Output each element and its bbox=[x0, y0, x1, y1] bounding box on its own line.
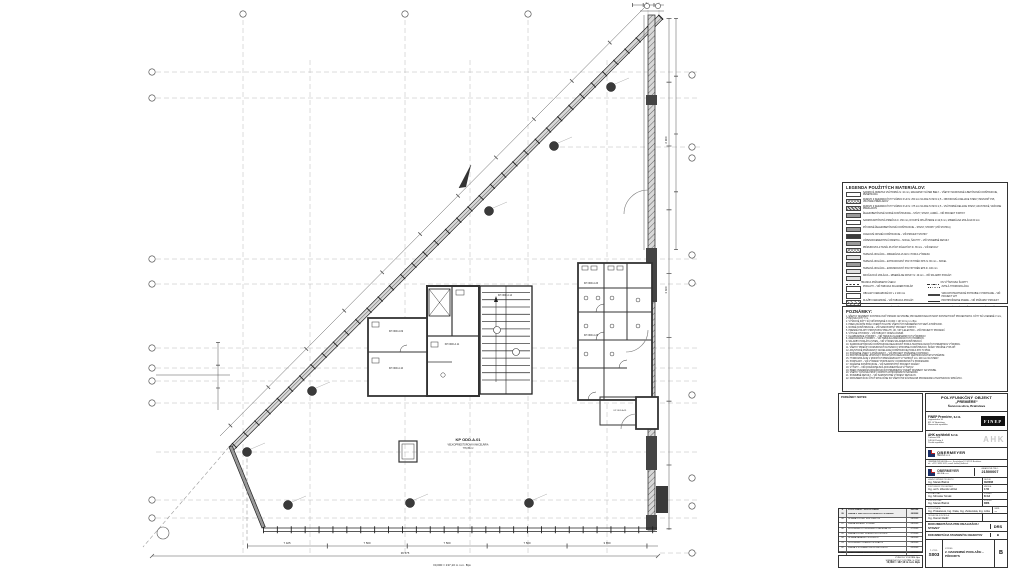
legend-swatch bbox=[846, 248, 861, 254]
drawing-sheet: KP ODD.A.01 VEĽKOPRIESTOROVÁ KANCELÁRIA … bbox=[0, 0, 1011, 570]
drawing-revision: B bbox=[994, 540, 1007, 567]
legend-text: MURIVO Z KERAMICKÝCH TVÁRNIC P+D hr. 175… bbox=[863, 206, 1004, 211]
investor-info: FINEP Premiére, s.r.o. Legionárska 10 81… bbox=[928, 415, 961, 427]
legend-row: VÁPENNOCEMENTOVÁ OMIETKA – SOKLE, ŠACHTY… bbox=[846, 240, 1004, 246]
legend-swatch bbox=[846, 213, 861, 219]
stage1-code: DRS bbox=[990, 524, 1005, 529]
legend-swatch bbox=[846, 284, 859, 285]
drawing-name: 2. NADZEMNÉ PODLAŽIE – PÔDORYS bbox=[945, 550, 992, 558]
rev-index: 03 bbox=[839, 542, 847, 546]
core-room-label: KP ODD.A.11 bbox=[445, 343, 460, 346]
obermeyer-repeat: OBERMEYER HELIKA s.r.o. bbox=[928, 468, 974, 476]
svg-text:7 500: 7 500 bbox=[444, 541, 451, 545]
person-meta-cell: PARÉ: — bbox=[992, 507, 1011, 513]
service-core bbox=[427, 286, 479, 396]
west-rooms bbox=[368, 318, 427, 396]
project-title: POLYFUNKČNÝ OBJEKT „PREMIÉRE“ Šancova ul… bbox=[926, 394, 1007, 412]
materials-legend: LEGENDA POUŽITÝCH MATERIÁLOV: SADROVÁ OM… bbox=[842, 182, 1008, 304]
stage-row-1: DOKUMENTÁCIA PRE REALIZÁCIU STAVBY DRS bbox=[926, 522, 1007, 532]
legend-text: OCEĽOVÉ NOSNÉ KONŠTRUKCIE – VIĎ PROJEKT … bbox=[863, 234, 1004, 237]
rev-description: ÚPRAVA POLOHY SDK PRIEČOK bbox=[847, 518, 907, 522]
rev-date: 08/2008 bbox=[907, 518, 922, 522]
legend-right-text: ZVISLÁ HYDROIZOLÁCIA bbox=[942, 286, 1005, 289]
legend-row: TEPELNÁ IZOLÁCIA – EXPANDOVANÝ POLYSTYRÉ… bbox=[846, 268, 1004, 274]
rev-date: 06/2008 bbox=[907, 542, 922, 546]
room-w1-label: KP ODD.A.09 bbox=[389, 330, 404, 333]
rev-description: DOPLNENIE KÓT A LEGENDY MATERIÁLOV bbox=[847, 528, 907, 532]
meta-value: — bbox=[994, 510, 1011, 513]
rev-index: 06 bbox=[839, 528, 847, 532]
note-line: 22. DOKUMENTÁCIU ČÍTAŤ SPOLOČNE SO VŠETK… bbox=[846, 378, 1004, 381]
revision-row: 03 DOPLNENIE POŽIARNYCH ÚDAJOV 06/2008 bbox=[839, 541, 922, 546]
architect-addr3: Česká republika bbox=[928, 442, 958, 445]
rev-description: ZMENA POLOHY DVERNÝCH OTVOROV bbox=[847, 533, 907, 537]
meta-value: DRS bbox=[984, 502, 1006, 505]
person-meta-cell: STUPEŇ: DRS bbox=[982, 500, 1007, 506]
person-cell: VYPRACOVAL: Ing. Miroslav Šimák bbox=[926, 493, 982, 499]
stage2-code: B bbox=[990, 533, 1005, 537]
obermeyer-logo-icon-2 bbox=[928, 469, 935, 476]
general-designer-row-2: OBERMEYER HELIKA s.r.o. ZÁKAZKOVÉ ČÍSLO:… bbox=[926, 467, 1007, 478]
stage1-text: DOKUMENTÁCIA PRE REALIZÁCIU STAVBY bbox=[928, 522, 990, 530]
general-designer-address: OBERMEYER HELIKA s.r.o., Kresánkova 12, … bbox=[926, 460, 1007, 467]
legend-text: ŽELEZOBETÓNOVÉ NOSNÉ KONŠTRUKCIE – STĹPY… bbox=[863, 213, 1004, 216]
rev-description: ZMENA V DISPOZÍCII HYGIENICKÝCH JADIER bbox=[847, 513, 907, 517]
legend-row: PÔVODNÉ ŽELEZOBETÓNOVÉ KONŠTRUKCIE – STE… bbox=[846, 227, 1004, 233]
rev-index: 05 bbox=[839, 533, 847, 537]
person-row: SPOLUPRÁCA: Ing. Prokešová, Ing. Fiala, … bbox=[926, 507, 1007, 514]
obermeyer-sub-2-text: HELIKA s.r.o. bbox=[937, 473, 959, 475]
rev-description: DOPLNENIE POŽIARNYCH ÚDAJOV bbox=[847, 542, 907, 546]
legend-swatch bbox=[846, 293, 861, 299]
legend-text: SADROVÁ OMIETKA VNÚTORNÁ hr. 10 mm, MALI… bbox=[863, 192, 1004, 197]
legend-row: ŽELEZOBETÓNOVÉ NOSNÉ KONŠTRUKCIE – STĹPY… bbox=[846, 213, 1004, 219]
setback-dashed-outline bbox=[143, 447, 247, 547]
legend-swatch bbox=[846, 192, 861, 198]
person-meta-cell: DÁTUM: 09/2008 bbox=[982, 478, 1007, 484]
legend-row: PODLAHY – VIĎ TABUĽKA SKLADIEB PODLÁH ZV… bbox=[846, 286, 1004, 292]
datum-box: VÝŠKOVÝ SYSTÉM: BpvSÚRADNICOVÝ SYSTÉM: S… bbox=[838, 555, 923, 568]
legend-row: TEPELNÁ IZOLÁCIA – EXTRUDOVANÝ POLYSTYRÉ… bbox=[846, 261, 1004, 267]
legend-title: LEGENDA POUŽITÝCH MATERIÁLOV: bbox=[846, 185, 1004, 190]
person-meta-cell: FORMÁT: 8×A4 bbox=[982, 493, 1007, 499]
rev-description: ZMENA V ROZSAHU SDK KONŠTRUKCIÍ bbox=[847, 547, 907, 551]
people-rows: HLAVNÝ INŽINIER PROJEKTU: Ing. Marek Bla… bbox=[926, 478, 1007, 522]
legend-line-symbol bbox=[928, 301, 940, 302]
legend-text: TEPELNÁ IZOLÁCIA – EXTRUDOVANÝ POLYSTYRÉ… bbox=[863, 261, 1004, 264]
legend-swatch bbox=[846, 276, 861, 282]
legend-text: VÁPENNOCEMENTOVÁ OMIETKA – SOKLE, ŠACHTY… bbox=[863, 240, 1004, 243]
revision-row: 09 ZMENA V DISPOZÍCII HYGIENICKÝCH JADIE… bbox=[839, 513, 922, 517]
project-line3: Šancova ulica, Bratislava bbox=[928, 404, 1005, 408]
legend-text: KROČAJOVÁ IZOLÁCIA – MINERÁLNE DOSKY hr.… bbox=[863, 275, 1004, 278]
obermeyer-sub: HELIKA s.r.o. bbox=[937, 455, 965, 457]
ahk-logo: AHK bbox=[983, 435, 1005, 444]
person-row: HLAVNÝ INŽINIER PROJEKTU: Ing. Marek Bla… bbox=[926, 478, 1007, 485]
legend-right-text: VZDUCHOTECHNICKÉ POTRUBIE V PODHĽADE – V… bbox=[942, 293, 1005, 298]
notes-title: POZNÁMKY: bbox=[846, 309, 1004, 314]
revision-row: 07 ZMENA SKLADBY PODLÁH 08/2008 bbox=[839, 522, 922, 527]
legend-row: TEPELNÁ IZOLÁCIA – MINERÁLNA VLNA hr. PO… bbox=[846, 254, 1004, 260]
rev-description: ZMENA SKLADBY PODLÁH bbox=[847, 523, 907, 527]
legend-text: HRANICA POŽIARNEHO ÚSEKU bbox=[861, 282, 925, 285]
legend-swatch bbox=[846, 262, 861, 268]
person-row: VYPRACOVAL: Ing. Miroslav Šimák FORMÁT: … bbox=[926, 493, 1007, 500]
legend-row: OCEĽOVÉ NOSNÉ KONŠTRUKCIE – VIĎ PROJEKT … bbox=[846, 234, 1004, 240]
datum-line: ±0,000 = 137,10 m n.m. Bpv bbox=[841, 562, 920, 565]
stage2-text: DOKUMENTÁCIA STAVEBNÝCH OBJEKTOV bbox=[928, 534, 990, 537]
finep-logo: FINEP bbox=[981, 416, 1005, 426]
legend-swatch bbox=[846, 234, 861, 240]
investor-row: FINEP Premiére, s.r.o. Legionárska 10 81… bbox=[926, 412, 1007, 431]
wc-room-1-label: KP ODD.A.26 bbox=[584, 282, 599, 285]
rev-date: 07/2008 bbox=[907, 528, 922, 532]
legend-right-text: PROTIPOŽIARNE DVERE – VIĎ POŽIARNY PROJE… bbox=[942, 300, 1005, 303]
rev-index: 07 bbox=[839, 523, 847, 527]
stage-row-2: DOKUMENTÁCIA STAVEBNÝCH OBJEKTOV B bbox=[926, 532, 1007, 540]
legend-row: MURIVO Z KERAMICKÝCH TVÁRNIC P+D hr. 175… bbox=[846, 206, 1004, 212]
corner-room-label: KP ODD.A.31 bbox=[614, 409, 628, 412]
person-name: Ing. Daniel Radič bbox=[928, 517, 980, 520]
bottom-right-room bbox=[621, 397, 658, 429]
datum-note: ±0,000 = 137,10 m n.m. Bpv bbox=[433, 563, 471, 567]
person-name: Ing. Prokešová, Ing. Fiala, Ing. Zvolens… bbox=[928, 510, 990, 513]
gp-addr2: tel.: +421 2 6930 1011, e-mail: helika@h… bbox=[928, 463, 1005, 465]
legend-swatch bbox=[846, 241, 861, 247]
person-row: TECHNICKÁ KONTROLA: Ing. Daniel Radič bbox=[926, 514, 1007, 521]
revision-rows: 09 ZMENA V DISPOZÍCII HYGIENICKÝCH JADIE… bbox=[839, 513, 922, 556]
revision-row: 02 ZMENA V ROZSAHU SDK KONŠTRUKCIÍ 05/20… bbox=[839, 546, 922, 551]
legend-swatch bbox=[846, 255, 861, 261]
legend-row: PRÍMUROVKA Z TEHÁL PLNÝCH PÁLENÝCH hr. 6… bbox=[846, 247, 1004, 253]
rev-index: 02 bbox=[839, 547, 847, 551]
legend-line-symbol bbox=[928, 294, 940, 296]
rev-date: 09/2008 bbox=[907, 513, 922, 517]
svg-text:36 575: 36 575 bbox=[401, 551, 410, 555]
revision-row: 06 DOPLNENIE KÓT A LEGENDY MATERIÁLOV 07… bbox=[839, 527, 922, 532]
obermeyer-title-2: OBERMEYER HELIKA s.r.o. bbox=[937, 469, 959, 475]
legend-text: TEPELNÁ IZOLÁCIA – MINERÁLNA VLNA hr. PO… bbox=[863, 254, 1004, 257]
title-block: POLYFUNKČNÝ OBJEKT „PREMIÉRE“ Šancova ul… bbox=[925, 393, 1008, 568]
architect-info: AHK architekti s.r.o. Türkova 828 149 00… bbox=[928, 433, 958, 445]
legend-text: TEPELNÁ IZOLÁCIA – EXPANDOVANÝ POLYSTYRÉ… bbox=[863, 268, 1004, 271]
revision-table: R POPIS ZMENY / DÔVOD ZMENY DÁTUM 09 ZME… bbox=[838, 508, 923, 553]
legend-swatch bbox=[846, 220, 861, 226]
notes-small-title: POZNÁMKY: NOTES: bbox=[841, 396, 920, 399]
stair-room-label: KP ODD.A.14 bbox=[498, 294, 513, 297]
revision-row: 05 ZMENA POLOHY DVERNÝCH OTVOROV 07/2008 bbox=[839, 532, 922, 537]
legend-text: DLAŽBY KERAMICKÉ – VIĎ TABUĽKA PODLÁH bbox=[863, 300, 926, 303]
facade-bottom-wall bbox=[263, 528, 657, 532]
legend-text: SADROKARTÓNOVÁ PRIEČKA hr. 150 mm, DVOJI… bbox=[863, 220, 1004, 223]
drawing-number: S003 bbox=[929, 552, 940, 557]
drawing-id-row: Č. VÝKR.: S003 VÝKRES: 2. NADZEMNÉ PODLA… bbox=[926, 540, 1007, 567]
meta-value: 09/2008 bbox=[984, 481, 1006, 484]
legend-row: HRANICA POŽIARNEHO ÚSEKU OS VÝŤAHOVEJ ŠA… bbox=[846, 282, 1004, 285]
rev-date: 08/2008 bbox=[907, 523, 922, 527]
person-name: Ing. Miroslav Šimák bbox=[928, 495, 980, 498]
person-cell: HLAVNÝ INŽINIER PROJEKTU: Ing. Marek Bla… bbox=[926, 478, 982, 484]
legend-row: MURIVO Z KERAMICKÝCH TVÁRNIC P+D hr. 250… bbox=[846, 199, 1004, 205]
person-row: ZODPOVEDNÝ PROJEKTANT: Ing. arch. Zdeněk… bbox=[926, 485, 1007, 492]
legend-row: SADROKARTÓNOVÁ PRIEČKA hr. 150 mm, DVOJI… bbox=[846, 220, 1004, 226]
legend-line-symbol bbox=[927, 284, 939, 285]
rev-index: 04 bbox=[839, 537, 847, 541]
svg-text:7 425: 7 425 bbox=[284, 541, 291, 545]
person-row: KONTROLOVAL: Ing. Marek Blahút STUPEŇ: D… bbox=[926, 500, 1007, 507]
person-cell: TECHNICKÁ KONTROLA: Ing. Daniel Radič bbox=[926, 514, 982, 520]
person-cell: ZODPOVEDNÝ PROJEKTANT: Ing. arch. Zdeněk… bbox=[926, 485, 982, 491]
legend-text: PÔVODNÉ ŽELEZOBETÓNOVÉ KONŠTRUKCIE – STE… bbox=[863, 227, 1004, 230]
obermeyer-name: OBERMEYER HELIKA s.r.o. bbox=[937, 450, 965, 457]
shaft-box bbox=[399, 441, 417, 462]
legend-line-symbol bbox=[928, 287, 940, 288]
person-cell: KONTROLOVAL: Ing. Marek Blahút bbox=[926, 500, 982, 506]
legend-row: OBKLADY KERAMICKÉ DO v. 2 100 mm VZDUCHO… bbox=[846, 293, 1004, 299]
legend-swatch bbox=[846, 227, 861, 233]
rev-date: 06/2008 bbox=[907, 537, 922, 541]
person-cell: SPOLUPRÁCA: Ing. Prokešová, Ing. Fiala, … bbox=[926, 507, 992, 513]
svg-text:7 500: 7 500 bbox=[524, 541, 531, 545]
investor-addr3: Slovenská republika bbox=[928, 424, 961, 427]
rev-date: 05/2008 bbox=[907, 547, 922, 551]
room-w2-label: KP ODD.A.10 bbox=[389, 367, 404, 370]
drawing-name-cell: VÝKRES: 2. NADZEMNÉ PODLAŽIE – PÔDORYS bbox=[943, 540, 994, 567]
person-meta-cell: MIERKA: 1:50 bbox=[982, 485, 1007, 491]
legend-swatch bbox=[846, 206, 861, 212]
person-name: Ing. arch. Zdeněk Hölzel bbox=[928, 488, 980, 491]
notes-lines: 1. VŠETKY ROZMERY KONTROLOVAŤ PRIAMO NA … bbox=[846, 316, 1004, 381]
meta-value: 8×A4 bbox=[984, 495, 1006, 498]
legend-right-text: OS VÝŤAHOVEJ ŠACHTY bbox=[941, 282, 1005, 285]
person-name: Ing. Marek Blahút bbox=[928, 502, 980, 505]
stair-core bbox=[480, 286, 532, 394]
person-meta-cell bbox=[982, 514, 1007, 520]
drawing-number-cell: Č. VÝKR.: S003 bbox=[926, 540, 943, 567]
legend-text: PODLAHY – VIĎ TABUĽKA SKLADIEB PODLÁH bbox=[863, 286, 926, 289]
rev-description: ÚPRAVA FASÁDNYCH PRVKOV bbox=[847, 537, 907, 541]
rev-index: 08 bbox=[839, 518, 847, 522]
wc-room-2-label: KP ODD.A.28 bbox=[584, 334, 599, 337]
svg-text:6 900: 6 900 bbox=[664, 136, 668, 143]
rev-index: 09 bbox=[839, 513, 847, 517]
rev-date: 07/2008 bbox=[907, 533, 922, 537]
legend-row: KROČAJOVÁ IZOLÁCIA – MINERÁLNE DOSKY hr.… bbox=[846, 275, 1004, 281]
revision-row: 04 ÚPRAVA FASÁDNYCH PRVKOV 06/2008 bbox=[839, 536, 922, 541]
legend-row: SADROVÁ OMIETKA VNÚTORNÁ hr. 10 mm, MALI… bbox=[846, 192, 1004, 198]
notes-small-box: POZNÁMKY: NOTES: bbox=[838, 393, 923, 432]
datum-lines: VÝŠKOVÝ SYSTÉM: BpvSÚRADNICOVÝ SYSTÉM: S… bbox=[841, 557, 920, 565]
legend-swatch bbox=[846, 199, 861, 205]
svg-text:3 600: 3 600 bbox=[664, 286, 668, 293]
svg-text:7 500: 7 500 bbox=[364, 541, 371, 545]
order-number-value: 21500007 bbox=[975, 470, 1005, 474]
architect-row: AHK architekti s.r.o. Türkova 828 149 00… bbox=[926, 431, 1007, 448]
legend-swatch bbox=[846, 269, 861, 275]
legend-swatch bbox=[846, 286, 861, 292]
legend-text: PRÍMUROVKA Z TEHÁL PLNÝCH PÁLENÝCH hr. 6… bbox=[863, 247, 1004, 250]
general-designer-row-1: OBERMEYER HELIKA s.r.o. bbox=[926, 448, 1007, 460]
obermeyer-logo-icon bbox=[928, 450, 935, 457]
meta-value: 1:50 bbox=[984, 488, 1006, 491]
open-space-area: 779,35 m² bbox=[463, 447, 474, 450]
svg-text:3 650: 3 650 bbox=[604, 541, 611, 545]
legend-text: OBKLADY KERAMICKÉ DO v. 2 100 mm bbox=[863, 293, 926, 296]
person-name: Ing. Marek Blahút bbox=[928, 481, 980, 484]
legend-text: MURIVO Z KERAMICKÝCH TVÁRNIC P+D hr. 250… bbox=[863, 199, 1004, 204]
legend-rows: SADROVÁ OMIETKA VNÚTORNÁ hr. 10 mm, MALI… bbox=[846, 192, 1004, 313]
notes-panel: POZNÁMKY: 1. VŠETKY ROZMERY KONTROLOVAŤ … bbox=[842, 306, 1008, 392]
revision-row: 08 ÚPRAVA POLOHY SDK PRIEČOK 08/2008 bbox=[839, 517, 922, 522]
order-number-cell: ZÁKAZKOVÉ ČÍSLO: 21500007 bbox=[974, 468, 1005, 476]
open-space-code: KP ODD.A.01 bbox=[455, 437, 481, 442]
